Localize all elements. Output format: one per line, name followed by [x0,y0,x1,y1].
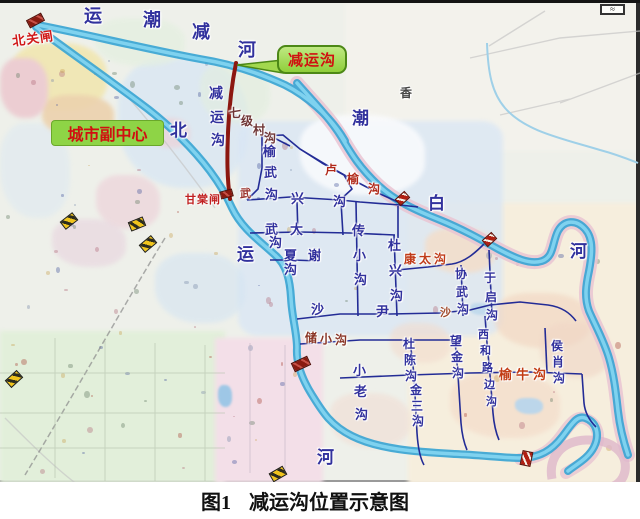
marker-gantang-icon [219,188,234,199]
gate-redwhite-2-icon [482,232,498,247]
jianyungou-callout: 减运沟 [277,45,347,74]
marker-rucun-icon [291,356,312,373]
figure: 运潮减河北运河潮白河减运沟七级村沟卢榆沟榆武沟兴沟武武大沟夏谢沟传小沟杜兴沟康太… [0,0,640,519]
jianyungou-callout-text: 减运沟 [288,49,336,70]
gate-layer [0,3,640,482]
wave-icon: ≈ [610,5,615,14]
figure-title: 减运沟位置示意图 [249,486,409,515]
gate-yellow-3-icon [139,235,158,253]
gate-redwhite-1-icon [395,191,411,206]
map-corner-icon: ≈ [600,4,625,15]
gate-yellow-5-icon [269,466,288,482]
gate-yellow-1-icon [60,212,79,230]
figure-caption: 图1 减运沟位置示意图 [0,482,640,519]
figure-number: 图1 [201,486,231,515]
map-image: 运潮减河北运河潮白河减运沟七级村沟卢榆沟榆武沟兴沟武武大沟夏谢沟传小沟杜兴沟康太… [0,0,640,482]
gate-yellow-4-icon [5,370,24,388]
city-subcenter-text: 城市副中心 [67,121,147,145]
marker-beiguan-icon [26,13,45,29]
city-subcenter-label: 城市副中心 [51,120,164,146]
gate-redwhite-3-icon [520,450,534,467]
gate-yellow-2-icon [128,216,147,231]
